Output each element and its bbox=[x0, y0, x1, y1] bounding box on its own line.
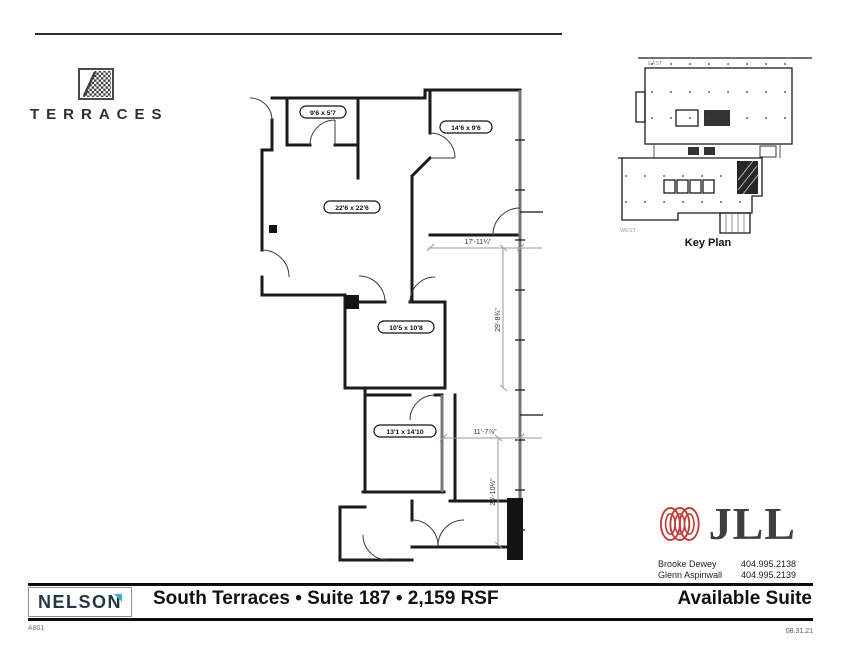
keyplan-west-label: WEST bbox=[620, 228, 637, 234]
titlebar-rule-bottom bbox=[28, 618, 813, 621]
keyplan-caption: Key Plan bbox=[685, 237, 732, 249]
terraces-logo: TERRACES bbox=[30, 68, 170, 123]
keyplan-column-dots bbox=[626, 64, 788, 202]
titlebar-rule-top bbox=[28, 583, 813, 586]
keyplan-east-wing bbox=[636, 68, 792, 144]
terraces-building-icon bbox=[78, 68, 114, 100]
nelson-accent-n: N bbox=[108, 592, 123, 613]
room-label: 13'1 x 14'10 bbox=[386, 429, 423, 436]
sheet-title: South Terraces • Suite 187 • 2,159 RSF bbox=[153, 588, 499, 610]
keyplan-core-block bbox=[704, 110, 730, 126]
room-label: 9'6 x 5'7 bbox=[310, 110, 336, 117]
jll-rings-icon bbox=[658, 492, 702, 556]
plan-dimension-labels: 17'-11¼" 29'-8¾" 11'-7⅞" 26'-10½" bbox=[464, 239, 502, 506]
availability-label: Available Suite bbox=[678, 588, 812, 610]
key-plan: EAST bbox=[612, 56, 812, 256]
dim-label: 26'-10½" bbox=[489, 478, 497, 506]
contact-phone: 404.995.2139 bbox=[741, 570, 796, 580]
nelson-wordmark: NELSO bbox=[38, 592, 108, 612]
room-label: 22'6 x 22'6 bbox=[335, 205, 369, 212]
dim-label: 29'-8¾" bbox=[495, 308, 502, 332]
plan-sheet: TERRACES bbox=[0, 0, 843, 650]
contact-phone: 404.995.2138 bbox=[741, 559, 796, 569]
contact-name: Brooke Dewey bbox=[658, 559, 722, 569]
top-rule bbox=[35, 33, 562, 35]
dim-label: 11'-7⅞" bbox=[473, 429, 497, 436]
plan-columns bbox=[269, 225, 523, 560]
contact-name: Glenn Aspinwall bbox=[658, 570, 722, 580]
room-label: 10'5 x 10'8 bbox=[389, 325, 423, 332]
keyplan-suite-highlight bbox=[737, 161, 758, 194]
jll-contacts: Brooke Dewey 404.995.2138 Glenn Aspinwal… bbox=[658, 559, 796, 580]
keyplan-stair-lines bbox=[726, 213, 744, 233]
dim-label: 17'-11¼" bbox=[464, 239, 492, 246]
nelson-logo: NELSON bbox=[28, 587, 132, 617]
sheet-date: 08.31.21 bbox=[786, 628, 813, 635]
keyplan-connector bbox=[654, 144, 780, 158]
keyplan-east-label: EAST bbox=[648, 61, 663, 67]
jll-wordmark: JLL bbox=[709, 502, 796, 546]
room-label: 14'6 x 9'6 bbox=[451, 125, 481, 132]
sheet-number: A801 bbox=[28, 625, 44, 632]
jll-block: JLL Brooke Dewey 404.995.2138 Glenn Aspi… bbox=[658, 492, 796, 580]
terraces-wordmark: TERRACES bbox=[30, 106, 170, 123]
floor-plan-drawing: 17'-11¼" 29'-8¾" 11'-7⅞" 26'-10½" 9'6 x … bbox=[250, 80, 570, 580]
